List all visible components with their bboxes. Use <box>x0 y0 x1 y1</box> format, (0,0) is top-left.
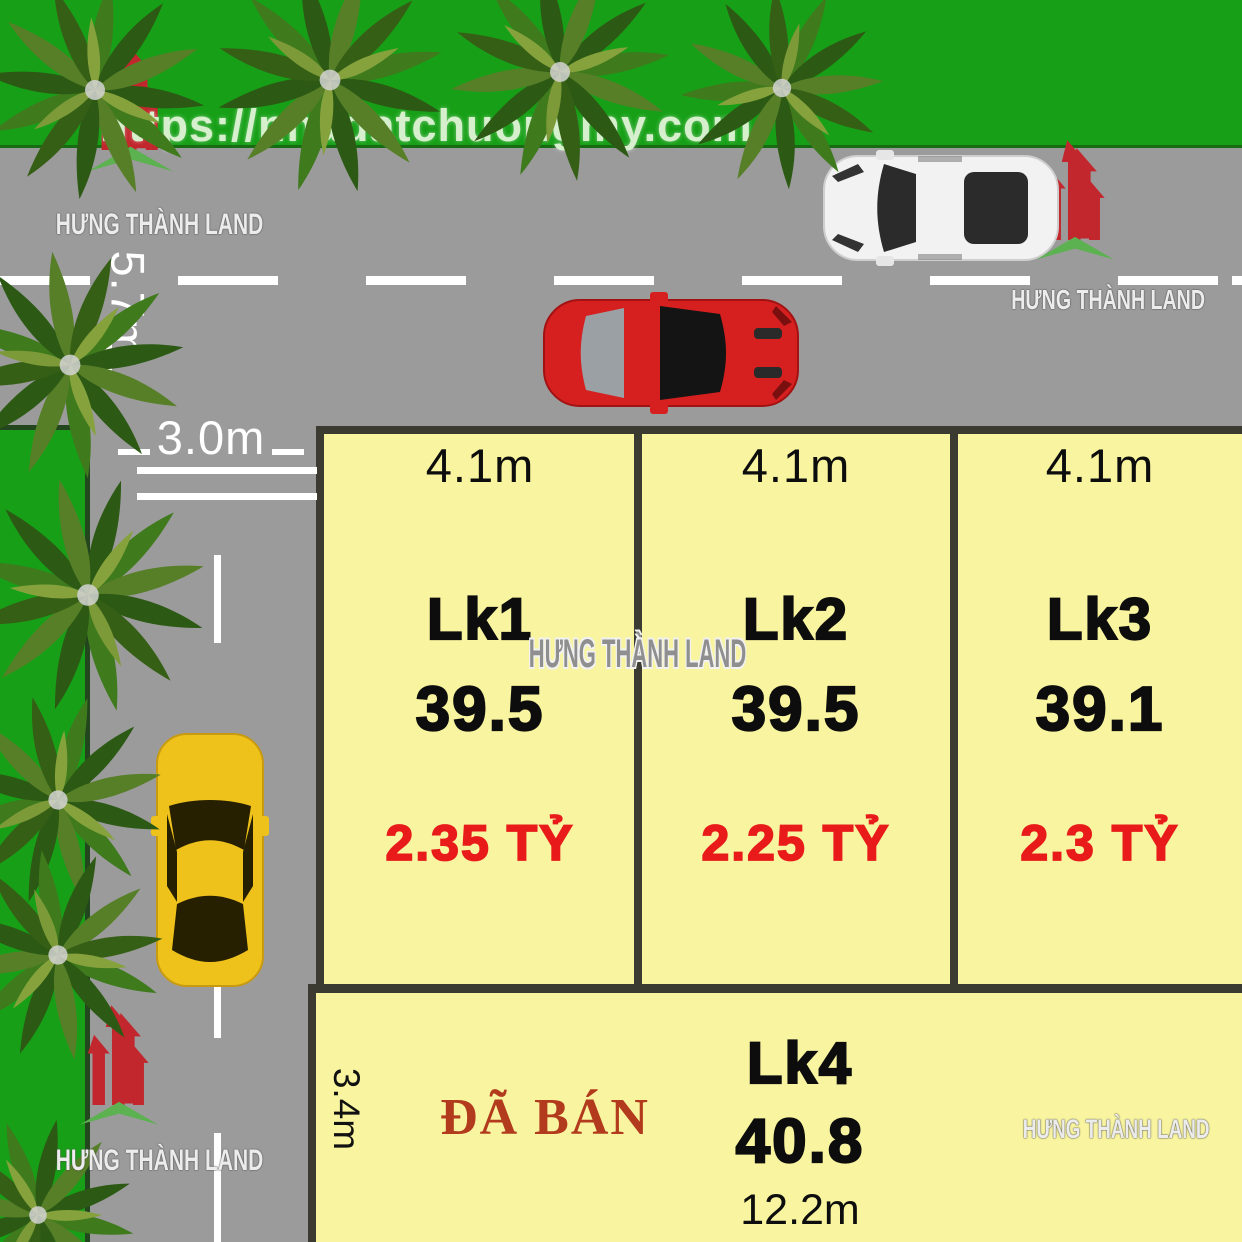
brand-logo-text: HƯNG THÀNH LAND <box>1011 284 1148 316</box>
plot-border-left <box>316 426 324 992</box>
land-plot-map: 5.7m 3.0m 4.1m Lk1 39.5 2.35 TỶ 4.1m Lk2… <box>0 0 1242 1242</box>
plot-border-top <box>316 426 1242 434</box>
plot-front-width: 12.2m <box>690 1186 910 1235</box>
stop-line <box>137 467 317 474</box>
plot-area: 39.5 <box>642 674 950 745</box>
brand-logo-text: HƯNG THÀNH LAND <box>529 632 678 677</box>
plot-price: 2.3 TỶ <box>958 814 1242 872</box>
plot-price: 2.35 TỶ <box>326 814 634 872</box>
plot-name: Lk4 <box>700 1030 900 1097</box>
brand-logo-text: HƯNG THÀNH LAND <box>56 1144 200 1178</box>
side-road-center-dash <box>214 985 221 1038</box>
plot-divider-lk1-lk2 <box>634 426 642 992</box>
plot-front-width: 4.1m <box>642 438 950 493</box>
plot-price: 2.25 TỶ <box>642 814 950 872</box>
plot-depth-label: 3.4m <box>325 1059 367 1159</box>
plot-front-width: 4.1m <box>958 438 1242 493</box>
brand-logo-text: HƯNG THÀNH LAND <box>1023 1114 1153 1145</box>
plot-area: 39.1 <box>958 674 1242 745</box>
plot-area: 39.5 <box>326 674 634 745</box>
plot-divider-lk4-top <box>308 984 1242 993</box>
plot-name: Lk3 <box>958 586 1242 653</box>
plot-sold-label: ĐÃ BÁN <box>415 1088 675 1147</box>
plot-divider-lk2-lk3 <box>950 426 958 992</box>
plot-front-width: 4.1m <box>326 438 634 493</box>
plot-area: 40.8 <box>690 1106 910 1177</box>
plot-border-left-lk4 <box>308 984 316 1242</box>
brand-logo-text: HƯNG THÀNH LAND <box>56 208 200 242</box>
red-car-icon <box>540 292 802 414</box>
